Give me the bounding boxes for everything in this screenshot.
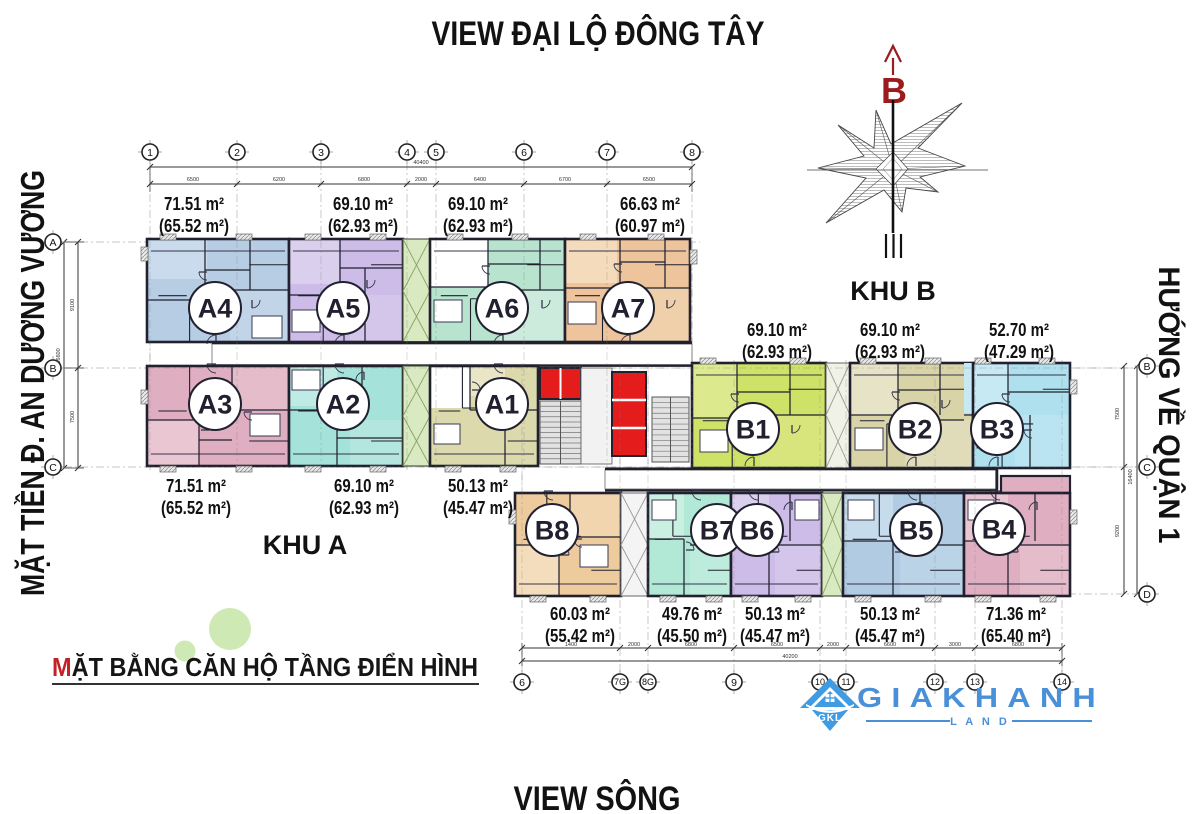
svg-text:60.03 m²: 60.03 m² <box>550 604 610 624</box>
svg-text:5: 5 <box>433 147 439 159</box>
svg-text:(62.93 m²): (62.93 m²) <box>855 342 925 362</box>
svg-text:6500: 6500 <box>187 177 199 183</box>
svg-text:71.51 m²: 71.51 m² <box>166 476 226 496</box>
svg-text:69.10 m²: 69.10 m² <box>747 320 807 340</box>
svg-text:(65.52 m²): (65.52 m²) <box>159 216 229 236</box>
svg-text:50.13 m²: 50.13 m² <box>448 476 508 496</box>
svg-text:(45.47 m²): (45.47 m²) <box>443 498 513 518</box>
svg-text:B1: B1 <box>736 415 771 445</box>
svg-text:A2: A2 <box>326 390 361 420</box>
svg-text:40400: 40400 <box>413 160 428 166</box>
svg-text:8: 8 <box>689 147 695 159</box>
svg-text:69.10 m²: 69.10 m² <box>333 194 393 214</box>
svg-text:VIEW SÔNG: VIEW SÔNG <box>514 779 681 814</box>
svg-text:6700: 6700 <box>559 177 571 183</box>
svg-text:D: D <box>1143 589 1151 601</box>
svg-text:C: C <box>1143 462 1151 474</box>
svg-text:A4: A4 <box>198 294 233 324</box>
svg-text:(45.47 m²): (45.47 m²) <box>855 626 925 646</box>
svg-text:2: 2 <box>234 147 240 159</box>
svg-text:6: 6 <box>521 147 527 159</box>
svg-text:B6: B6 <box>740 516 775 546</box>
svg-text:6: 6 <box>519 677 525 689</box>
svg-text:A6: A6 <box>485 294 520 324</box>
svg-text:(62.93 m²): (62.93 m²) <box>329 498 399 518</box>
svg-text:GIAKHANH: GIAKHANH <box>857 682 1105 713</box>
svg-text:(62.93 m²): (62.93 m²) <box>443 216 513 236</box>
svg-text:7G: 7G <box>614 677 626 687</box>
svg-text:66.63 m²: 66.63 m² <box>620 194 680 214</box>
svg-text:2000: 2000 <box>628 642 640 648</box>
svg-text:11: 11 <box>841 677 850 687</box>
svg-text:69.10 m²: 69.10 m² <box>860 320 920 340</box>
svg-text:6200: 6200 <box>273 177 285 183</box>
svg-text:A7: A7 <box>611 294 646 324</box>
svg-text:6500: 6500 <box>643 177 655 183</box>
svg-text:A3: A3 <box>198 390 233 420</box>
svg-text:1: 1 <box>147 147 153 159</box>
svg-text:71.51 m²: 71.51 m² <box>164 194 224 214</box>
svg-text:(47.29 m²): (47.29 m²) <box>984 342 1054 362</box>
svg-text:(65.52 m²): (65.52 m²) <box>161 498 231 518</box>
svg-text:8G: 8G <box>642 677 654 687</box>
svg-text:3: 3 <box>318 147 324 159</box>
svg-text:A5: A5 <box>326 294 361 324</box>
svg-text:40200: 40200 <box>782 654 797 660</box>
svg-text:KHU A: KHU A <box>263 530 348 560</box>
svg-text:MẶT BẰNG CĂN HỘ TẦNG ĐIỂN HÌNH: MẶT BẰNG CĂN HỘ TẦNG ĐIỂN HÌNH <box>52 652 478 682</box>
svg-text:VIEW ĐẠI LỘ ĐÔNG TÂY: VIEW ĐẠI LỘ ĐÔNG TÂY <box>432 14 765 53</box>
svg-text:6800: 6800 <box>358 177 370 183</box>
svg-text:7500: 7500 <box>70 411 76 423</box>
svg-text:B4: B4 <box>982 515 1017 545</box>
svg-text:(65.40 m²): (65.40 m²) <box>981 626 1051 646</box>
svg-text:69.10 m²: 69.10 m² <box>448 194 508 214</box>
svg-text:16400: 16400 <box>1128 469 1134 484</box>
svg-text:B7: B7 <box>700 516 735 546</box>
svg-text:MẶT TIỀN Đ. AN DƯƠNG VƯƠNG: MẶT TIỀN Đ. AN DƯƠNG VƯƠNG <box>14 170 51 596</box>
svg-text:6400: 6400 <box>474 177 486 183</box>
svg-text:4: 4 <box>404 147 410 159</box>
svg-text:7500: 7500 <box>1115 408 1121 420</box>
svg-text:2000: 2000 <box>415 177 427 183</box>
svg-text:(55.42 m²): (55.42 m²) <box>545 626 615 646</box>
svg-text:B8: B8 <box>535 516 570 546</box>
svg-text:9200: 9200 <box>1115 525 1121 537</box>
svg-text:(45.50 m²): (45.50 m²) <box>657 626 727 646</box>
svg-text:HƯỚNG VỀ QUẬN 1: HƯỚNG VỀ QUẬN 1 <box>1152 267 1186 544</box>
svg-text:3000: 3000 <box>949 642 961 648</box>
svg-text:69.10 m²: 69.10 m² <box>334 476 394 496</box>
svg-text:9100: 9100 <box>70 299 76 311</box>
svg-text:A1: A1 <box>485 390 520 420</box>
svg-text:52.70 m²: 52.70 m² <box>989 320 1049 340</box>
svg-text:(62.93 m²): (62.93 m²) <box>328 216 398 236</box>
svg-text:50.13 m²: 50.13 m² <box>745 604 805 624</box>
svg-text:B3: B3 <box>980 415 1015 445</box>
svg-text:B: B <box>1143 361 1150 373</box>
svg-text:9: 9 <box>731 677 737 689</box>
svg-text:49.76 m²: 49.76 m² <box>662 604 722 624</box>
svg-text:71.36 m²: 71.36 m² <box>986 604 1046 624</box>
svg-text:2000: 2000 <box>827 642 839 648</box>
svg-text:7: 7 <box>604 147 610 159</box>
svg-text:(62.93 m²): (62.93 m²) <box>742 342 812 362</box>
svg-text:B2: B2 <box>898 415 933 445</box>
svg-text:(45.47 m²): (45.47 m²) <box>740 626 810 646</box>
svg-text:(60.97 m²): (60.97 m²) <box>615 216 685 236</box>
svg-text:GKL: GKL <box>818 713 842 724</box>
svg-text:50.13 m²: 50.13 m² <box>860 604 920 624</box>
svg-text:L A N D: L A N D <box>950 716 1010 728</box>
svg-text:B5: B5 <box>899 516 934 546</box>
svg-text:KHU B: KHU B <box>850 276 936 306</box>
